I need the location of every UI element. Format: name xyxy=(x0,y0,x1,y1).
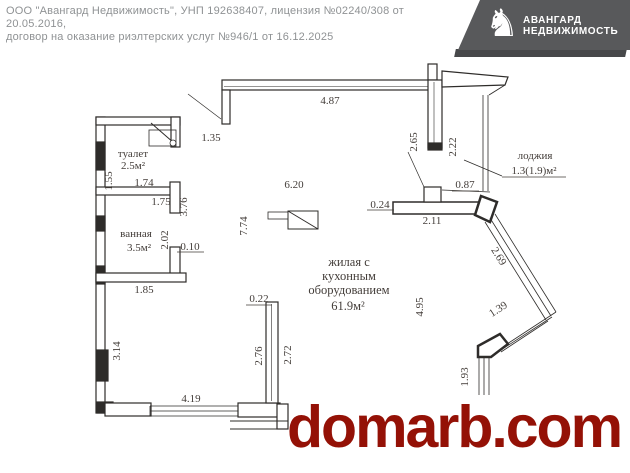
dim-3-76: 3.76 xyxy=(178,197,190,217)
room-bath-area: 3.5м² xyxy=(127,242,152,254)
dim-2-11: 2.11 xyxy=(423,215,442,227)
dim-2-76: 2.76 xyxy=(253,346,265,366)
dim-7-74: 7.74 xyxy=(238,216,250,236)
dim-4-87: 4.87 xyxy=(320,95,340,107)
dim-2-65: 2.65 xyxy=(408,132,420,152)
dim-3-14: 3.14 xyxy=(111,341,123,361)
watermark-text: domarb.com xyxy=(287,397,621,457)
dim-1-74: 1.74 xyxy=(134,177,154,189)
dim-4-19: 4.19 xyxy=(181,393,201,405)
room-labels: туалет 2.5м² ванная 3.5м² жилая с кухонн… xyxy=(118,148,557,313)
room-toilet-name: туалет xyxy=(118,148,148,160)
room-living-name-line3: оборудованием xyxy=(308,283,389,297)
room-living-name-line1: жилая с xyxy=(327,255,370,269)
floorplan-document: ООО "Авангард Недвижимость", УНП 1926384… xyxy=(0,0,630,473)
room-loggia-name: лоджия xyxy=(518,150,553,162)
room-loggia-area: 1.3(1.9)м² xyxy=(511,165,557,177)
dim-1-55: 1.55 xyxy=(103,171,115,191)
walls xyxy=(96,64,508,429)
dim-2-02: 2.02 xyxy=(159,230,171,249)
dim-0-10: 0.10 xyxy=(180,241,200,253)
dim-1-75: 1.75 xyxy=(151,196,171,208)
dim-0-24: 0.24 xyxy=(370,199,390,211)
room-toilet-area: 2.5м² xyxy=(121,160,146,172)
dim-1-39: 1.39 xyxy=(487,299,510,320)
room-bath-name: ванная xyxy=(120,228,152,240)
dim-2-69: 2.69 xyxy=(488,245,509,268)
dimension-labels: 4.87 1.35 2.65 2.22 0.87 6.20 1.74 1.75 … xyxy=(103,95,510,405)
dim-2-22: 2.22 xyxy=(447,137,459,156)
dim-0-87: 0.87 xyxy=(455,179,475,191)
dim-4-95: 4.95 xyxy=(414,297,426,317)
room-living-name-line2: кухонным xyxy=(322,269,376,283)
dim-2-72: 2.72 xyxy=(282,345,294,364)
dim-1-93: 1.93 xyxy=(459,367,471,387)
dim-1-35: 1.35 xyxy=(201,132,221,144)
vent-duct-icon xyxy=(268,211,318,229)
room-living-area: 61.9м² xyxy=(331,299,365,313)
dim-0-22: 0.22 xyxy=(249,293,268,305)
dim-6-20: 6.20 xyxy=(284,179,304,191)
dim-1-85: 1.85 xyxy=(134,284,154,296)
